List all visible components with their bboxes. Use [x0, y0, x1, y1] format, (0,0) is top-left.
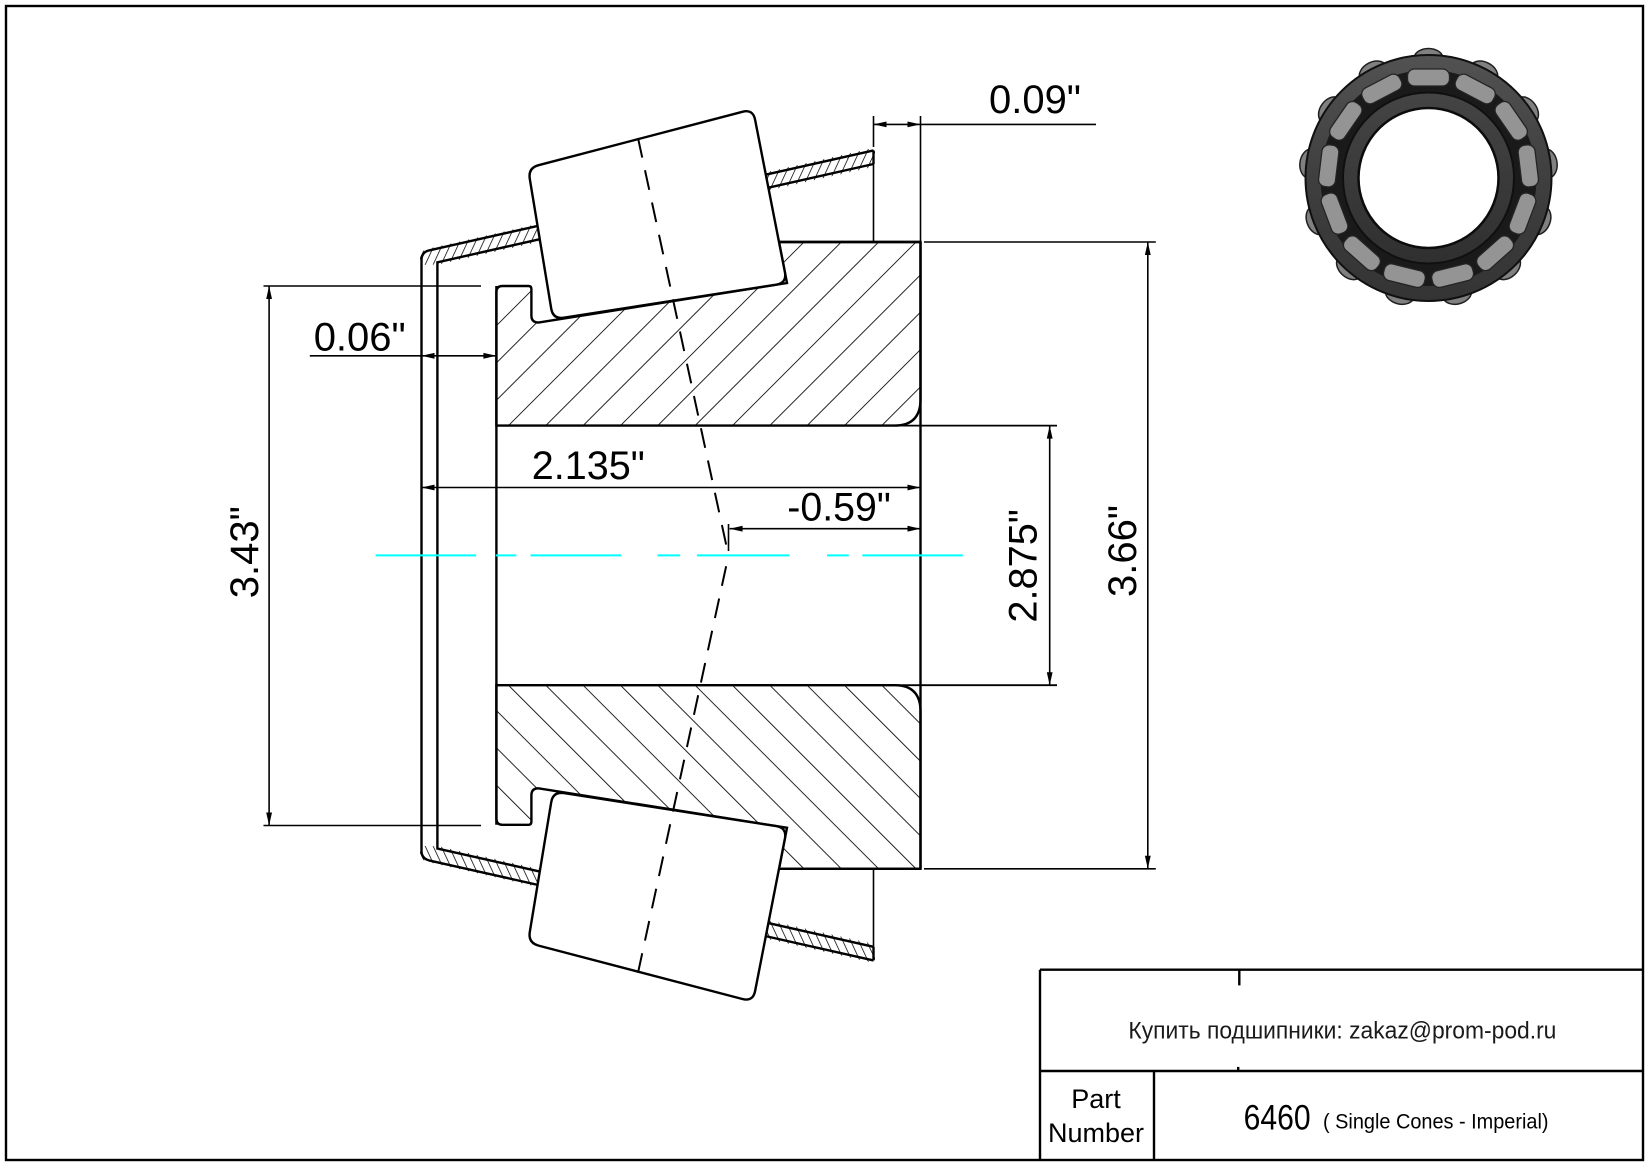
svg-text:Part: Part [1071, 1084, 1121, 1114]
svg-text:0.09": 0.09" [989, 78, 1081, 122]
svg-text:Number: Number [1048, 1118, 1144, 1148]
svg-text:6460: 6460 [1244, 1099, 1311, 1138]
svg-text:3.66": 3.66" [1101, 505, 1145, 597]
svg-text:2.135": 2.135" [532, 444, 645, 488]
svg-text:3.43": 3.43" [223, 506, 267, 598]
svg-text:-0.59": -0.59" [787, 486, 891, 530]
svg-text:( Single Cones - Imperial): ( Single Cones - Imperial) [1323, 1111, 1549, 1134]
svg-text:Купить подшипники: zakaz@prom-: Купить подшипники: zakaz@prom-pod.ru [1128, 1018, 1556, 1045]
svg-text:2.875": 2.875" [1002, 509, 1046, 623]
svg-text:0.06": 0.06" [314, 315, 406, 359]
